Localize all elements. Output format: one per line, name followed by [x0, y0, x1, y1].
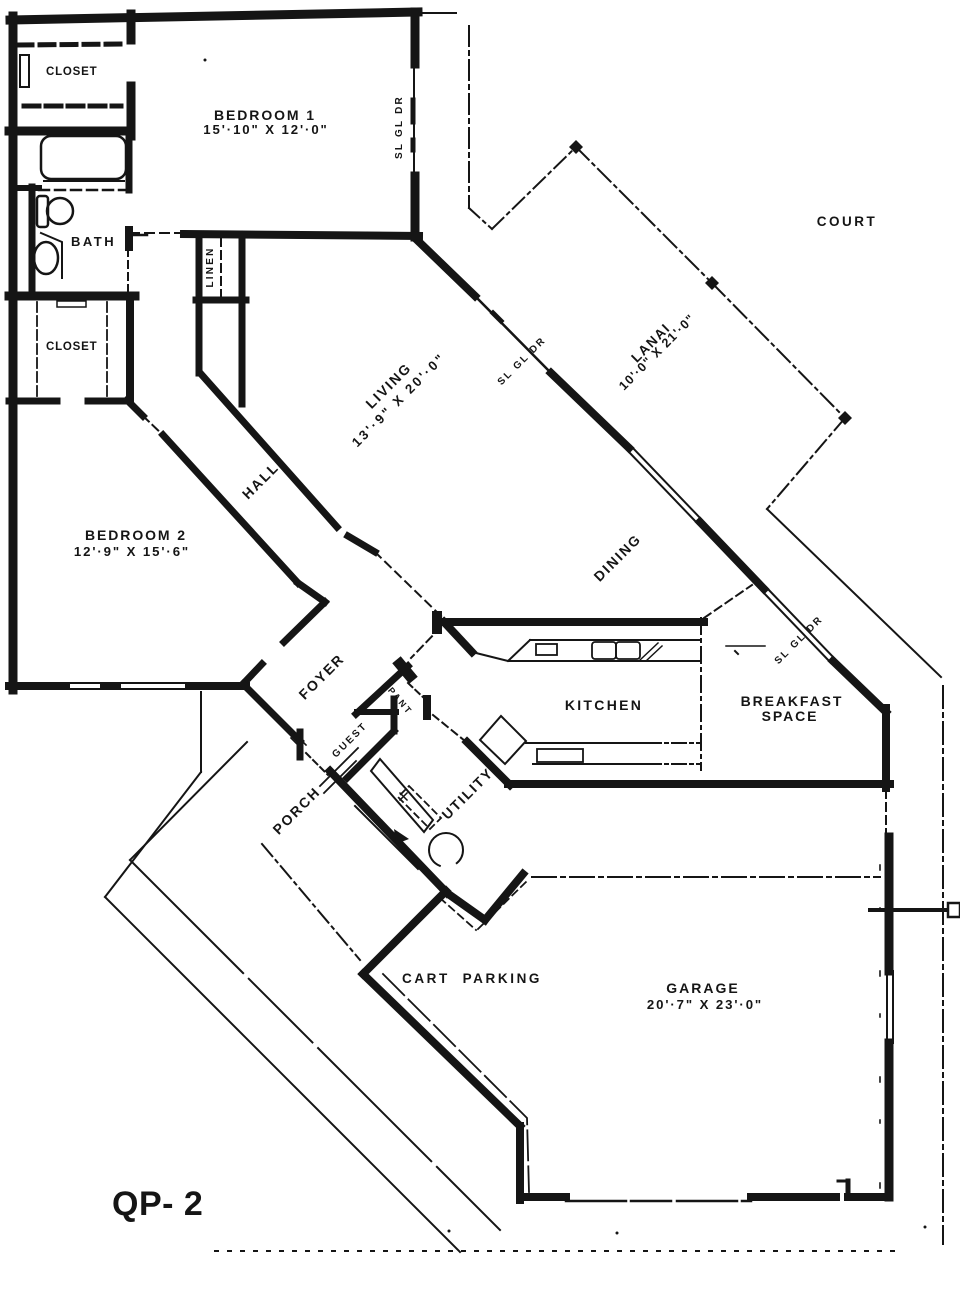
svg-text:CLOSET: CLOSET	[46, 66, 97, 78]
svg-text:12'·9" X 15'·6": 12'·9" X 15'·6"	[74, 544, 190, 559]
svg-text:SPACE: SPACE	[762, 708, 819, 724]
svg-text:CLOSET: CLOSET	[46, 341, 97, 353]
svg-text:QP- 2: QP- 2	[112, 1185, 203, 1223]
svg-text:BEDROOM 1: BEDROOM 1	[214, 107, 316, 123]
svg-text:GARAGE: GARAGE	[666, 980, 739, 996]
svg-text:CART PARKING: CART PARKING	[402, 971, 542, 986]
svg-text:15'·10" X 12'·0": 15'·10" X 12'·0"	[203, 122, 328, 137]
svg-text:SL GL DR: SL GL DR	[394, 95, 405, 159]
svg-text:BREAKFAST: BREAKFAST	[741, 693, 844, 709]
svg-text:BEDROOM 2: BEDROOM 2	[85, 527, 187, 543]
svg-text:COURT: COURT	[817, 214, 878, 229]
svg-text:KITCHEN: KITCHEN	[565, 697, 643, 713]
svg-text:20'·7" X 23'·0": 20'·7" X 23'·0"	[647, 997, 763, 1012]
svg-text:LINEN: LINEN	[205, 247, 216, 288]
svg-text:BATH: BATH	[71, 234, 116, 249]
